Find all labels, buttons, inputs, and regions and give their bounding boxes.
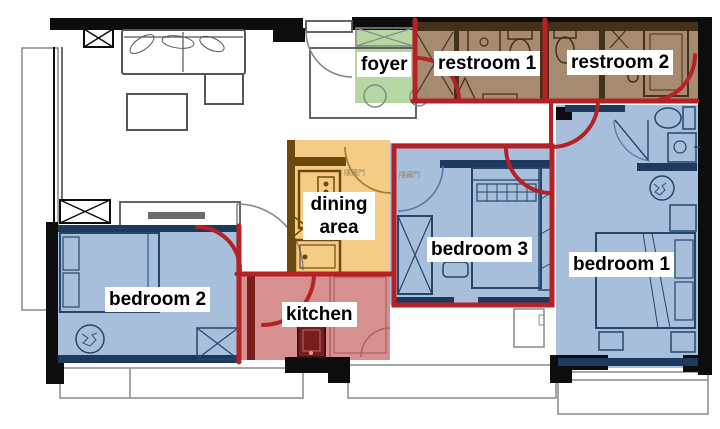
sofa-chaise: [205, 74, 243, 104]
floorplan: foyer restroom 1 restroom 2 dining area …: [0, 0, 720, 429]
hidden-door-text: 隱藏門: [399, 170, 420, 180]
room-label-bedroom-1: bedroom 1: [569, 252, 674, 277]
tv: [148, 212, 205, 219]
room-label-kitchen: kitchen: [282, 302, 357, 327]
hidden-door-text: 隱藏門: [344, 168, 365, 178]
room-label-dining-area: dining area: [303, 192, 375, 240]
column-x-box: [60, 200, 110, 223]
column-x-box: [84, 29, 113, 47]
room-label-foyer: foyer: [357, 52, 411, 77]
room-label-restroom-2: restroom 2: [567, 50, 673, 75]
room-label-bedroom-3: bedroom 3: [427, 237, 532, 262]
room-label-restroom-1: restroom 1: [434, 51, 540, 76]
utility-fixtures: [514, 309, 544, 347]
coffee-table: [127, 94, 187, 130]
sofa-plant-leaf: [127, 31, 157, 57]
main-entrance-door: [306, 21, 352, 77]
sofa-plant-leaf: [161, 34, 194, 50]
room-label-bedroom-2: bedroom 2: [105, 287, 210, 312]
